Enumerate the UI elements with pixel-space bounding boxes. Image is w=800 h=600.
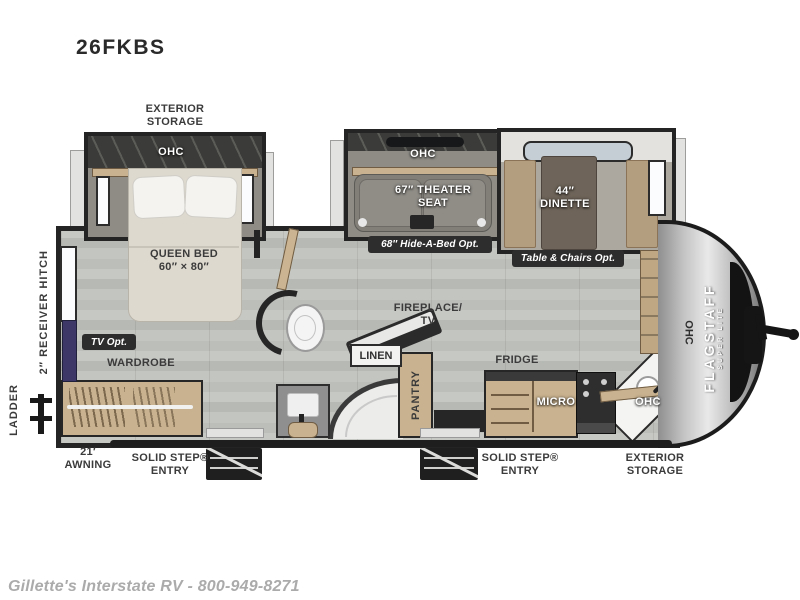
fireplace-tv-label: FIREPLACE/ TV (383, 302, 473, 328)
floorplan-model-title: 26FKBS (76, 36, 166, 60)
fridge-text: FRIDGE (487, 354, 547, 367)
brand-logo: FLAGSTAFF SUPER LITE (701, 273, 727, 403)
table-chairs-option-badge: Table & Chairs Opt. (512, 250, 624, 267)
wardrobe-rod (67, 405, 193, 409)
exterior-storage-top-line2: STORAGE (127, 116, 223, 129)
dealer-watermark: Gillette's Interstate RV - 800-949-8271 (8, 578, 300, 596)
exterior-storage-front-line2: STORAGE (605, 465, 705, 478)
bed-ohc-label: OHC (129, 146, 213, 159)
theater-slide-window (386, 137, 464, 147)
fridge-label: FRIDGE (487, 354, 547, 367)
linen-label: LINEN (360, 350, 393, 362)
ladder-rung-top (30, 398, 52, 403)
theater-ohc-label: OHC (388, 148, 458, 161)
wardrobe-label: WARDROBE (101, 357, 181, 370)
exterior-storage-front-line1: EXTERIOR (605, 452, 705, 465)
bedroom-wall-stub (254, 230, 260, 258)
hitch-handle-knob (788, 329, 799, 340)
wardrobe-cabinet (61, 380, 203, 437)
theater-slide-left-wing (330, 140, 344, 228)
bed-slide-right-window (240, 174, 254, 224)
bed-ohc-text: OHC (129, 146, 213, 159)
brand-name: FLAGSTAFF (701, 273, 717, 403)
bed-pillow-left (132, 175, 186, 220)
exterior-storage-front-label: EXTERIOR STORAGE (605, 452, 705, 478)
bed-slide-left-window (96, 176, 110, 226)
entry-label-1: SOLID STEP® ENTRY (120, 452, 220, 478)
micro-text: MICRO (526, 396, 586, 409)
bed-pillow-right (184, 175, 238, 220)
ladder-text: LADDER (8, 384, 20, 436)
exterior-storage-top-line1: EXTERIOR (127, 103, 223, 116)
entry2-line1: SOLID STEP® (470, 452, 570, 465)
brand-subname: SUPER LITE (717, 273, 724, 403)
queen-bed-line1: QUEEN BED (124, 248, 244, 261)
theater-cupholder-left (358, 218, 367, 227)
fireplace-line1: FIREPLACE/ (383, 302, 473, 315)
queen-bed-label: QUEEN BED 60″ × 80″ (124, 248, 244, 274)
bedroom-rear-window (60, 246, 77, 322)
toilet-bowl (294, 315, 316, 341)
dinette-side-window (648, 160, 666, 216)
theater-line1: 67″ THEATER (373, 184, 493, 197)
theater-cupholder-right (477, 218, 486, 227)
awning-label: 21′ AWNING (48, 446, 128, 472)
ladder-rung-bottom (30, 416, 52, 421)
entry-door-threshold-1 (206, 428, 264, 438)
entry-label-2: SOLID STEP® ENTRY (470, 452, 570, 478)
hide-a-bed-option-text: 68″ Hide-A-Bed Opt. (381, 239, 479, 250)
step-tread (424, 457, 474, 459)
receiver-hitch-text: 2″ RECEIVER HITCH (38, 250, 50, 374)
vanity-stool (288, 422, 318, 438)
theater-line2: SEAT (373, 197, 493, 210)
dinette-label: 44″ DINETTE (529, 185, 601, 211)
receiver-hitch-label: 2″ RECEIVER HITCH (36, 250, 52, 374)
toilet (286, 304, 325, 352)
burner-1 (583, 379, 589, 385)
fridge-drawer-line1 (491, 394, 529, 396)
awning-line2: AWNING (48, 459, 128, 472)
fridge-drawer-line2 (491, 408, 529, 410)
dinette-line2: DINETTE (529, 198, 601, 211)
dinette-line1: 44″ (529, 185, 601, 198)
front-ohc-text: OHC (683, 320, 695, 344)
pantry-label: PANTRY (410, 370, 422, 420)
bathroom-vanity (276, 384, 330, 438)
fridge-drawer-line3 (491, 422, 529, 424)
range-front (577, 423, 615, 433)
hide-a-bed-option-badge: 68″ Hide-A-Bed Opt. (368, 236, 492, 253)
tv-option-text: TV Opt. (91, 337, 127, 348)
ladder-label: LADDER (6, 382, 22, 438)
entry1-line1: SOLID STEP® (120, 452, 220, 465)
table-chairs-option-text: Table & Chairs Opt. (521, 253, 615, 264)
exterior-storage-top-label: EXTERIOR STORAGE (127, 103, 223, 129)
front-ohc-label: OHC (682, 313, 695, 353)
entry-door-threshold-2 (420, 428, 480, 438)
fireplace-line2: TV (383, 315, 473, 328)
pantry-cabinet: PANTRY (398, 352, 433, 438)
theater-seat-label: 67″ THEATER SEAT (373, 184, 493, 210)
kitchen-ohc-label: OHC (628, 396, 668, 409)
bedroom-tv-panel (62, 320, 77, 382)
theater-console (410, 215, 434, 229)
wardrobe-text: WARDROBE (101, 357, 181, 370)
burner-2 (601, 379, 607, 385)
awning-tube (110, 440, 672, 447)
tv-option-badge: TV Opt. (82, 334, 136, 350)
entry1-line2: ENTRY (120, 465, 220, 478)
awning-line1: 21′ (48, 446, 128, 459)
micro-label: MICRO (526, 396, 586, 409)
queen-bed-line2: 60″ × 80″ (124, 261, 244, 274)
kitchen-ohc-text: OHC (628, 396, 668, 409)
shower-pan (345, 395, 397, 437)
theater-ohc-text: OHC (388, 148, 458, 161)
entry2-line2: ENTRY (470, 465, 570, 478)
floorplan-image: 26FKBS EXTERIOR STORAGE OHC QUEEN BED 60… (0, 0, 800, 600)
linen-cabinet: LINEN (350, 344, 402, 367)
fridge-counter-top (486, 372, 576, 381)
